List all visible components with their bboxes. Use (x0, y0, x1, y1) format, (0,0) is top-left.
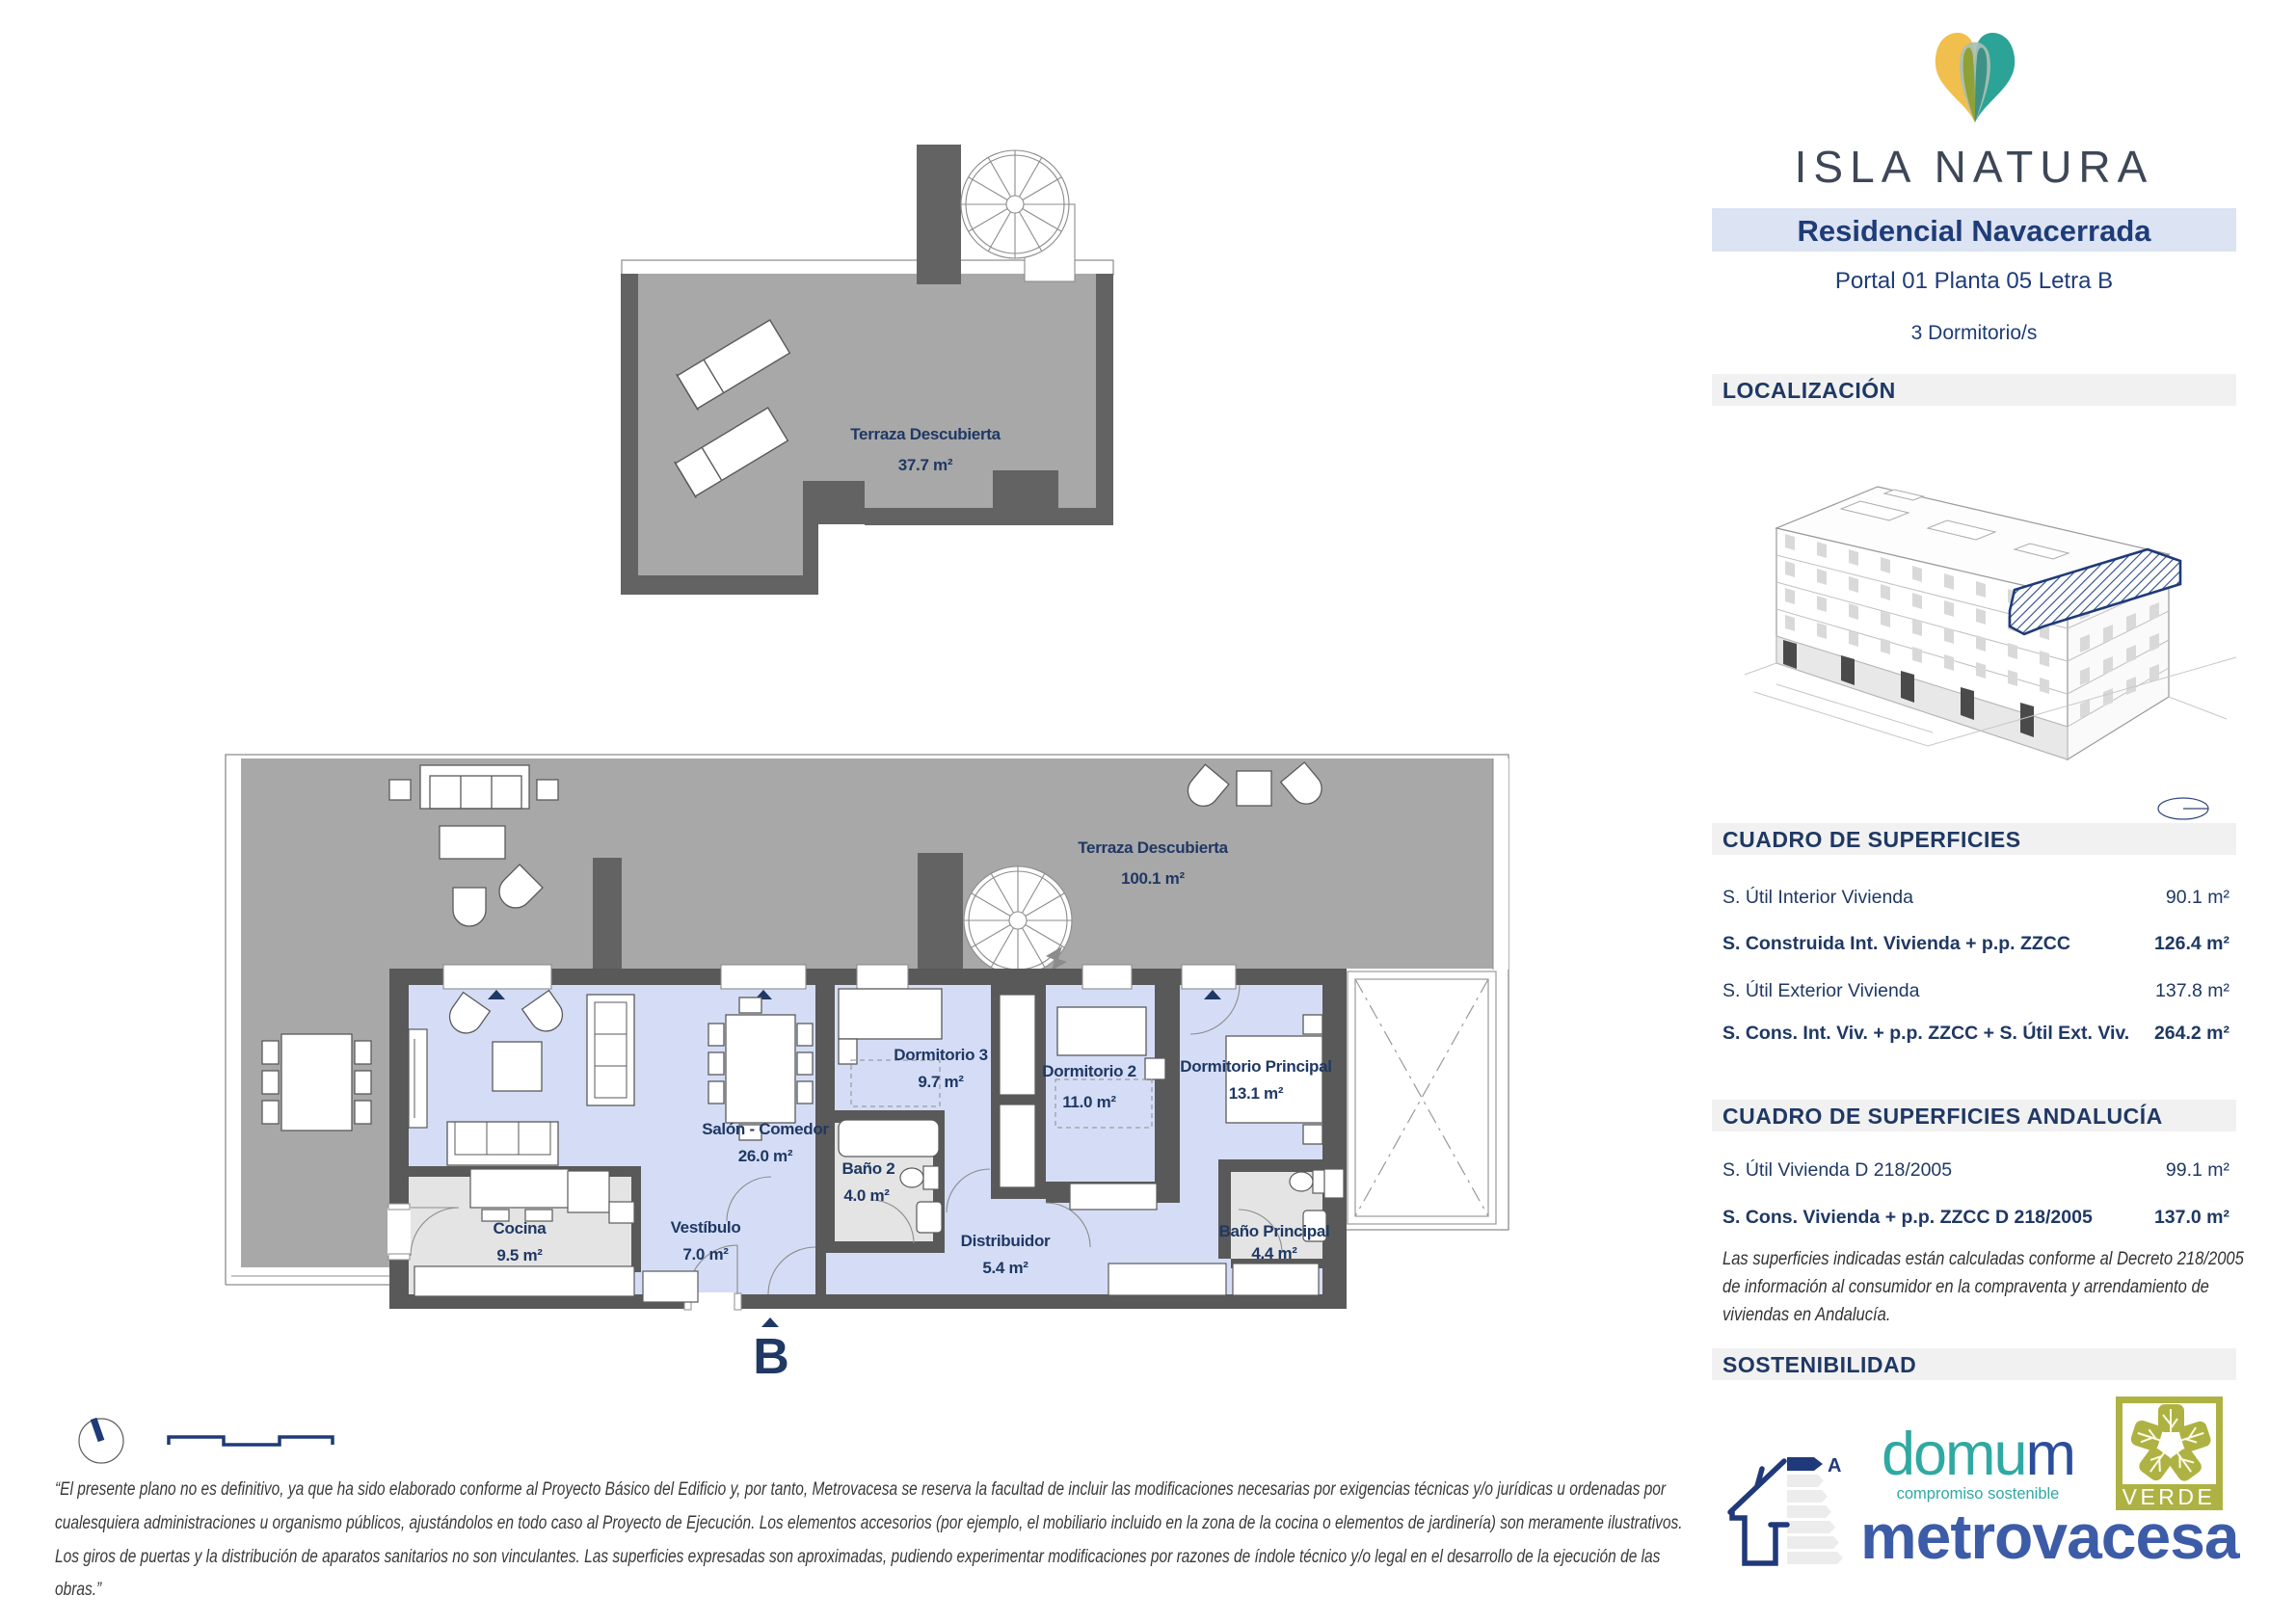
svg-text:Terraza Descubierta: Terraza Descubierta (850, 425, 1001, 443)
svg-text:Salón - Comedor: Salón - Comedor (702, 1120, 829, 1138)
svg-text:9.7 m²: 9.7 m² (918, 1073, 964, 1091)
svg-text:11.0 m²: 11.0 m² (1062, 1093, 1116, 1111)
svg-text:Cocina: Cocina (494, 1219, 547, 1237)
svg-text:A: A (1828, 1455, 1841, 1477)
svg-text:100.1 m²: 100.1 m² (1121, 869, 1185, 888)
svg-text:13.1 m²: 13.1 m² (1229, 1084, 1284, 1103)
svg-text:Dormitorio 3: Dormitorio 3 (894, 1046, 987, 1064)
svg-text:Dormitorio 2: Dormitorio 2 (1042, 1062, 1135, 1080)
svg-text:4.4 m²: 4.4 m² (1251, 1244, 1297, 1263)
svg-text:5.4 m²: 5.4 m² (982, 1259, 1028, 1277)
svg-text:9.5 m²: 9.5 m² (496, 1246, 543, 1264)
svg-text:Terraza Descubierta: Terraza Descubierta (1078, 838, 1228, 857)
svg-text:Dormitorio Principal: Dormitorio Principal (1180, 1057, 1331, 1076)
svg-text:Baño 2: Baño 2 (842, 1159, 895, 1178)
svg-text:Baño Principal: Baño Principal (1219, 1222, 1330, 1240)
svg-text:B: B (753, 1329, 789, 1385)
svg-text:Distribuidor: Distribuidor (961, 1232, 1051, 1250)
svg-text:37.7 m²: 37.7 m² (898, 456, 953, 474)
svg-text:26.0 m²: 26.0 m² (738, 1147, 793, 1165)
svg-text:4.0 m²: 4.0 m² (843, 1186, 890, 1205)
svg-text:Vestíbulo: Vestíbulo (671, 1218, 741, 1237)
svg-text:7.0 m²: 7.0 m² (682, 1245, 729, 1264)
